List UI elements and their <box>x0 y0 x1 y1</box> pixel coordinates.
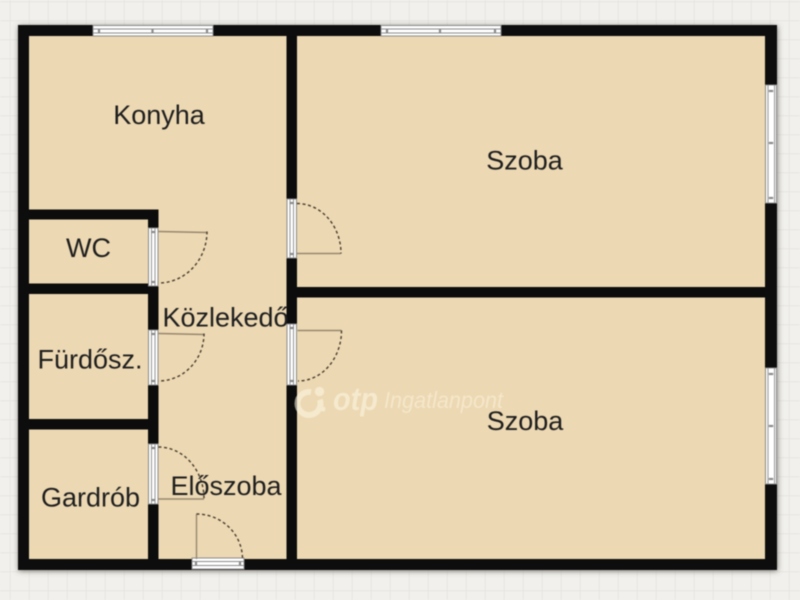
svg-text:Fürdősz.: Fürdősz. <box>37 345 142 375</box>
svg-text:Szoba: Szoba <box>486 146 564 176</box>
svg-text:otp: otp <box>333 381 378 417</box>
svg-text:Gardrób: Gardrób <box>41 483 140 513</box>
svg-text:Előszoba: Előszoba <box>170 471 282 501</box>
svg-text:Közlekedő: Közlekedő <box>162 303 288 333</box>
svg-text:Konyha: Konyha <box>113 100 206 130</box>
svg-text:WC: WC <box>66 233 111 263</box>
svg-text:Szoba: Szoba <box>487 406 565 436</box>
